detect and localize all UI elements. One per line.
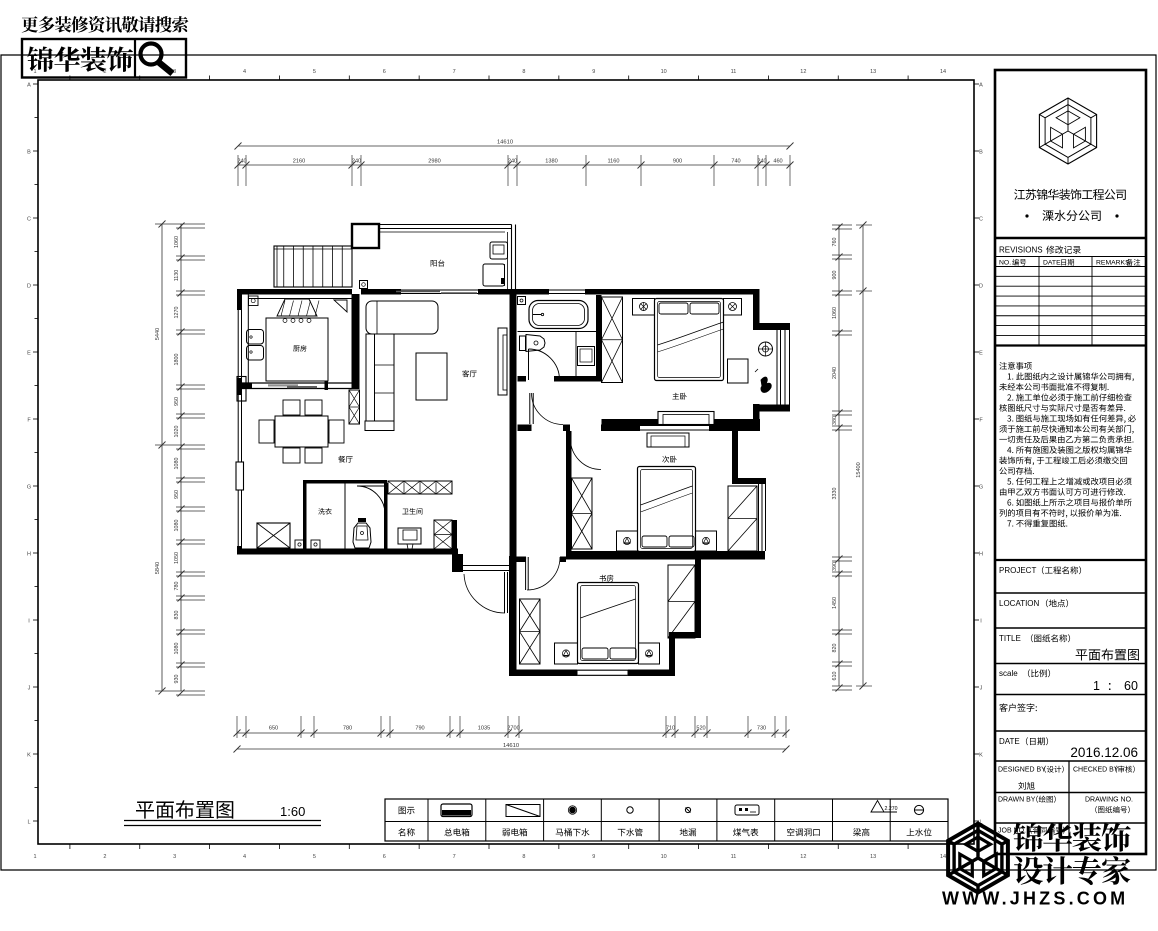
svg-text:J: J: [980, 685, 983, 691]
svg-text:A: A: [979, 82, 983, 88]
svg-text:1:60: 1:60: [280, 804, 305, 819]
svg-text:780: 780: [343, 726, 352, 732]
svg-text:930: 930: [174, 675, 180, 684]
svg-text:730: 730: [757, 726, 766, 732]
svg-text:L: L: [27, 819, 30, 825]
svg-text:B: B: [979, 149, 983, 155]
svg-text:6: 6: [383, 69, 386, 75]
svg-text:1160: 1160: [607, 159, 619, 165]
svg-text:240: 240: [352, 159, 361, 165]
svg-text:1800: 1800: [174, 354, 180, 366]
svg-text:610: 610: [832, 672, 838, 681]
svg-text:WWW.JHZS.COM: WWW.JHZS.COM: [942, 889, 1128, 909]
svg-text:780: 780: [174, 582, 180, 591]
svg-text:820: 820: [832, 644, 838, 653]
svg-text:2.270: 2.270: [885, 806, 898, 812]
svg-text:DATE: DATE: [1043, 260, 1061, 267]
svg-text:10: 10: [661, 69, 667, 75]
svg-text:G: G: [27, 484, 31, 490]
svg-text:PROJECT: PROJECT: [999, 566, 1036, 575]
svg-text:8: 8: [522, 69, 525, 75]
svg-text:5: 5: [313, 69, 316, 75]
svg-text:2700: 2700: [507, 726, 519, 732]
svg-text:1060: 1060: [174, 236, 180, 248]
svg-text:E: E: [27, 350, 31, 356]
svg-text:4: 4: [243, 854, 246, 860]
svg-text:7: 7: [453, 69, 456, 75]
svg-text:J: J: [28, 685, 31, 691]
svg-text:8: 8: [522, 854, 525, 860]
svg-text:900: 900: [673, 159, 682, 165]
svg-text:60: 60: [1124, 679, 1138, 693]
svg-text:1080: 1080: [174, 520, 180, 532]
svg-text:scale: scale: [999, 669, 1018, 678]
svg-text:K: K: [27, 752, 31, 758]
svg-text:DRAWN BY: DRAWN BY: [998, 797, 1036, 804]
svg-text:C: C: [27, 216, 31, 222]
svg-text:5: 5: [313, 854, 316, 860]
svg-text:LOCATION: LOCATION: [999, 599, 1040, 608]
svg-text:C: C: [979, 216, 983, 222]
svg-text:830: 830: [174, 611, 180, 620]
svg-text:5840: 5840: [155, 562, 161, 574]
svg-text:1050: 1050: [174, 552, 180, 564]
svg-text:2980: 2980: [428, 159, 440, 165]
svg-text:H: H: [979, 551, 983, 557]
svg-text:13: 13: [870, 854, 876, 860]
svg-text:520: 520: [696, 726, 705, 732]
svg-text:1020: 1020: [174, 426, 180, 438]
svg-text:14: 14: [940, 69, 946, 75]
svg-text:TITLE: TITLE: [999, 634, 1021, 643]
svg-text:3: 3: [173, 854, 176, 860]
svg-text:740: 740: [731, 159, 740, 165]
svg-text:760: 760: [832, 238, 838, 247]
svg-text:2160: 2160: [293, 159, 305, 165]
svg-text:B: B: [27, 149, 31, 155]
svg-text:DATE: DATE: [999, 737, 1020, 746]
svg-text:460: 460: [773, 159, 782, 165]
svg-text:1: 1: [1093, 679, 1100, 693]
svg-text:D: D: [27, 283, 31, 289]
svg-text:1: 1: [33, 854, 36, 860]
svg-text:A: A: [27, 82, 31, 88]
svg-text:DRAWING NO.: DRAWING NO.: [1085, 797, 1133, 804]
svg-text:1080: 1080: [174, 643, 180, 655]
svg-text:950: 950: [174, 490, 180, 499]
svg-text:10: 10: [661, 854, 667, 860]
svg-text:REVISIONS: REVISIONS: [999, 246, 1043, 255]
svg-text:1130: 1130: [174, 270, 180, 282]
svg-text:4: 4: [243, 69, 246, 75]
svg-text:1270: 1270: [174, 307, 180, 319]
svg-text:950: 950: [174, 397, 180, 406]
svg-text:1035: 1035: [478, 726, 490, 732]
svg-text:DESIGNED BY: DESIGNED BY: [998, 767, 1046, 774]
svg-text:D: D: [979, 283, 983, 289]
svg-text:G: G: [979, 484, 983, 490]
svg-text:390: 390: [832, 562, 838, 571]
svg-text:1080: 1080: [174, 458, 180, 470]
svg-text:14610: 14610: [497, 140, 513, 146]
svg-text:K: K: [979, 752, 983, 758]
svg-text:710: 710: [666, 726, 675, 732]
svg-text:900: 900: [832, 271, 838, 280]
svg-text:NO.: NO.: [999, 260, 1011, 267]
svg-text:7: 7: [453, 854, 456, 860]
svg-text:380: 380: [832, 416, 838, 425]
svg-text:12: 12: [800, 69, 806, 75]
svg-text:15400: 15400: [856, 462, 862, 478]
svg-text:9: 9: [592, 854, 595, 860]
svg-text:240: 240: [757, 159, 766, 165]
svg-text:9: 9: [592, 69, 595, 75]
svg-text:6: 6: [383, 854, 386, 860]
svg-text:3330: 3330: [832, 488, 838, 500]
svg-text:H: H: [27, 551, 31, 557]
svg-text:12: 12: [800, 854, 806, 860]
svg-text:14610: 14610: [503, 743, 519, 749]
svg-text:650: 650: [269, 726, 278, 732]
svg-text:5440: 5440: [155, 328, 161, 340]
svg-text:E: E: [979, 350, 983, 356]
svg-text:2: 2: [103, 854, 106, 860]
svg-text:2040: 2040: [832, 367, 838, 379]
svg-text:14: 14: [940, 854, 946, 860]
svg-text:REMARKS: REMARKS: [1096, 260, 1130, 267]
svg-text:1450: 1450: [832, 597, 838, 609]
svg-text:13: 13: [870, 69, 876, 75]
svg-text:1380: 1380: [545, 159, 557, 165]
svg-text:240: 240: [508, 159, 517, 165]
svg-text:CHECKED BY: CHECKED BY: [1073, 767, 1119, 774]
svg-text:790: 790: [415, 726, 424, 732]
svg-text:2016.12.06: 2016.12.06: [1070, 745, 1138, 760]
svg-text:11: 11: [731, 69, 737, 75]
svg-text:1060: 1060: [832, 307, 838, 319]
svg-text:240: 240: [237, 159, 246, 165]
svg-text:1: 1: [33, 69, 36, 75]
svg-text:11: 11: [731, 854, 737, 860]
